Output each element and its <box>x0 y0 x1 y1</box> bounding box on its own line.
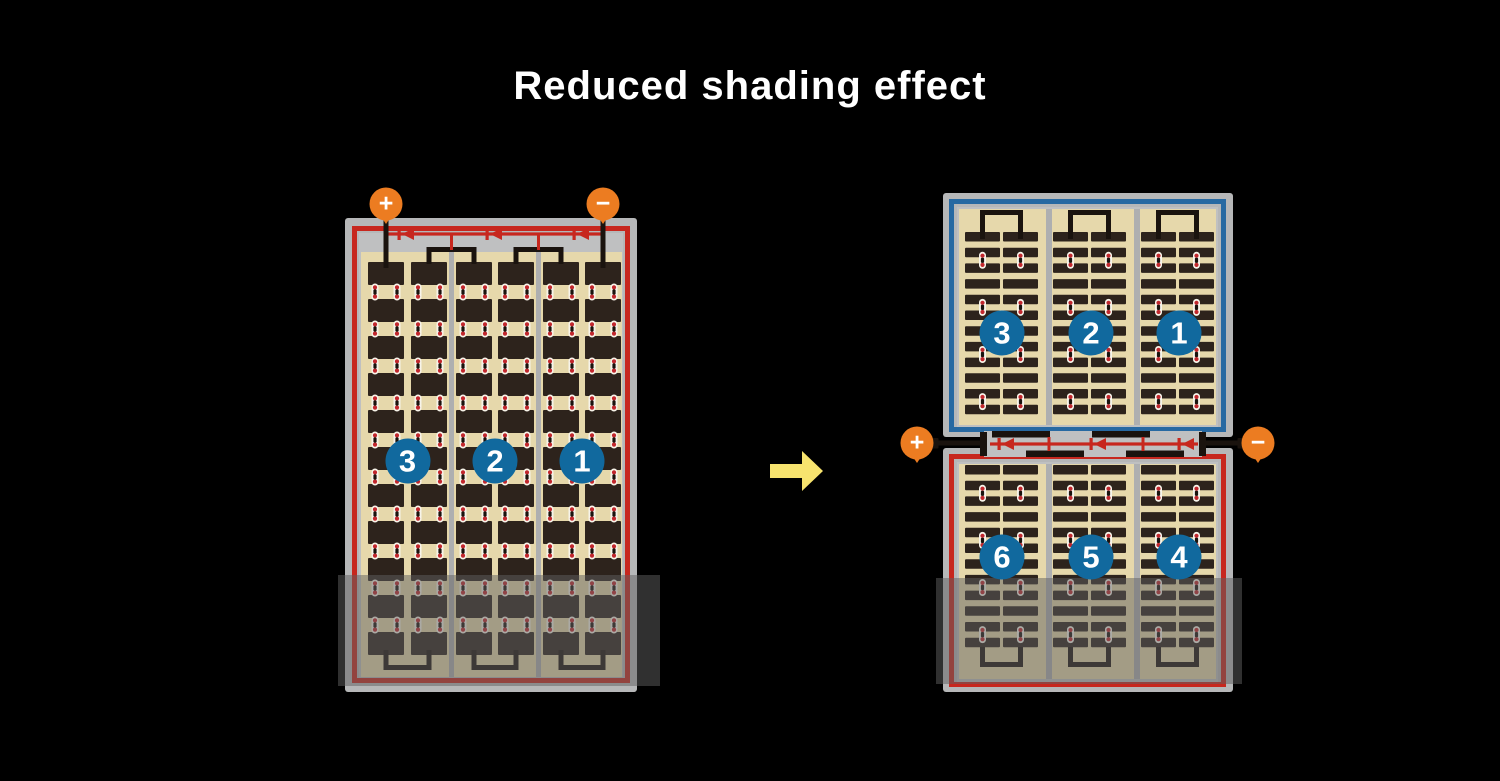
transition-arrow-icon <box>770 451 823 491</box>
string-badge-bottom-4: 4 <box>1157 535 1202 580</box>
string-badge-left-2: 2 <box>473 439 518 484</box>
string-badge-top-2: 2 <box>1069 311 1114 356</box>
diagram-graphics <box>0 0 1500 781</box>
string-badge-top-1: 1 <box>1157 311 1202 356</box>
figure-title: Reduced shading effect <box>0 64 1500 109</box>
string-badge-bottom-5: 5 <box>1069 535 1114 580</box>
terminal-positive-left: + <box>370 188 403 221</box>
string-badge-top-3: 3 <box>980 311 1025 356</box>
figure-background: { "title": "Reduced shading effect", "le… <box>0 0 1500 781</box>
transition-arrow <box>770 451 823 491</box>
terminal-negative-right: − <box>1242 427 1275 460</box>
string-badge-left-1: 1 <box>560 439 605 484</box>
figure-canvas: Reduced shading effect + − 3 2 1 + − 3 2… <box>0 0 1500 781</box>
terminal-negative-left: − <box>587 188 620 221</box>
string-badge-bottom-6: 6 <box>980 535 1025 580</box>
terminal-positive-right: + <box>901 427 934 460</box>
shade-overlay <box>338 575 1242 686</box>
string-badge-left-3: 3 <box>385 439 430 484</box>
